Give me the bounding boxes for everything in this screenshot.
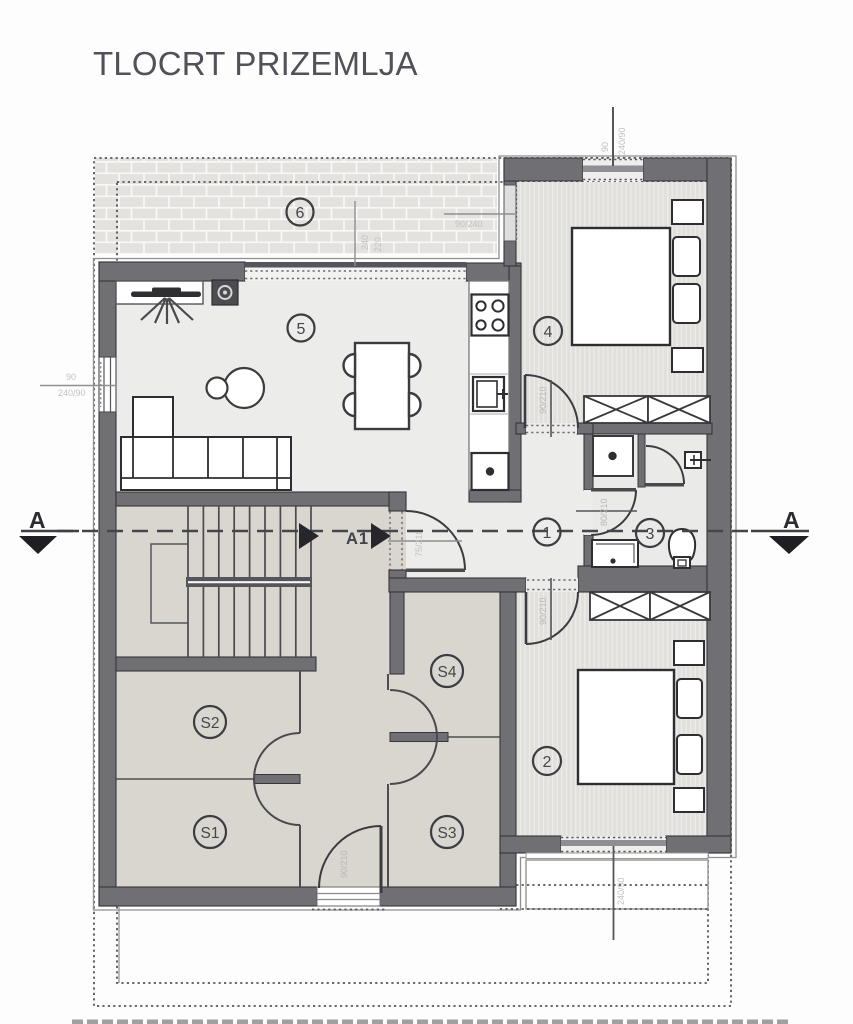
svg-text:240/90: 240/90 bbox=[617, 127, 627, 155]
svg-text:240/90: 240/90 bbox=[58, 388, 86, 398]
svg-text:90: 90 bbox=[66, 372, 76, 382]
svg-text:1: 1 bbox=[543, 525, 552, 542]
svg-text:4: 4 bbox=[544, 324, 553, 341]
svg-text:80/210: 80/210 bbox=[599, 498, 609, 526]
svg-text:90/210: 90/210 bbox=[339, 850, 349, 878]
svg-text:A: A bbox=[29, 507, 46, 533]
svg-text:75/210: 75/210 bbox=[414, 529, 424, 557]
svg-text:S1: S1 bbox=[201, 825, 220, 842]
svg-text:240: 240 bbox=[360, 235, 370, 250]
svg-text:5: 5 bbox=[297, 321, 306, 338]
svg-text:90/210: 90/210 bbox=[538, 386, 548, 414]
svg-text:2: 2 bbox=[543, 754, 552, 771]
svg-text:S3: S3 bbox=[438, 825, 457, 842]
svg-text:A1: A1 bbox=[346, 530, 369, 548]
svg-text:A: A bbox=[783, 507, 800, 533]
svg-text:90/210: 90/210 bbox=[538, 597, 548, 625]
svg-text:S2: S2 bbox=[201, 715, 220, 732]
svg-text:TLOCRT PRIZEMLJA: TLOCRT PRIZEMLJA bbox=[93, 45, 418, 82]
svg-text:240/90: 240/90 bbox=[616, 877, 626, 905]
svg-text:6: 6 bbox=[296, 205, 305, 222]
svg-text:220: 220 bbox=[373, 237, 383, 252]
svg-text:S4: S4 bbox=[438, 664, 457, 681]
svg-text:3: 3 bbox=[646, 526, 655, 543]
svg-text:90/240: 90/240 bbox=[455, 219, 483, 229]
svg-text:90: 90 bbox=[600, 142, 610, 152]
